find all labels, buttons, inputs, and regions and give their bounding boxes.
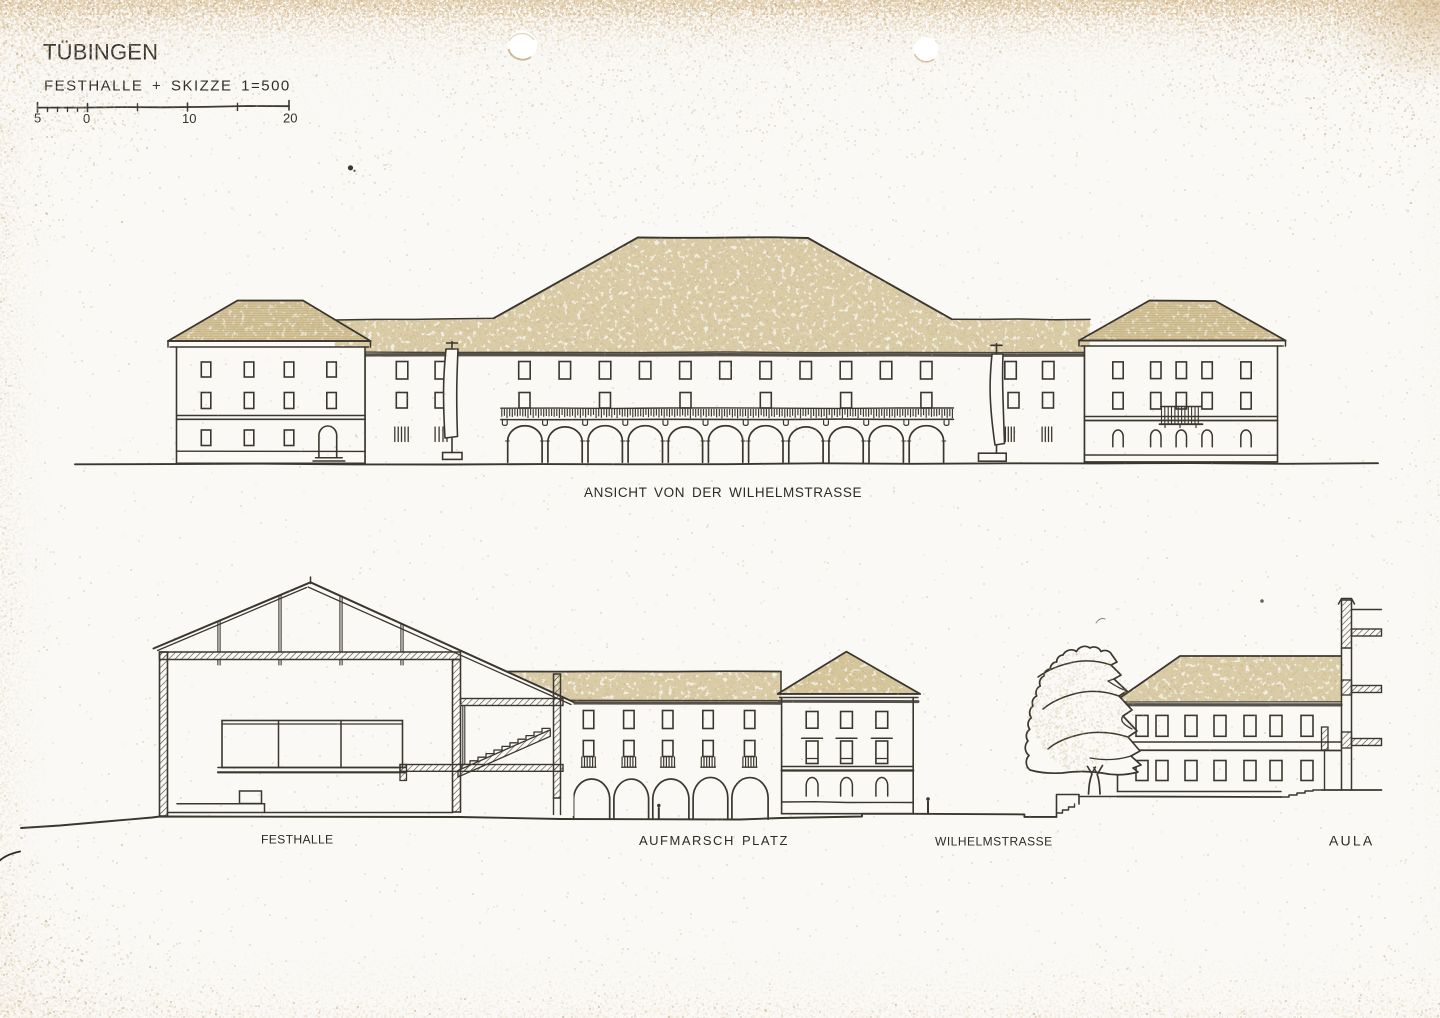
svg-text:FESTHALLE: FESTHALLE — [261, 833, 333, 847]
svg-text:ANSICHT VON DER WILHELMSTRASSE: ANSICHT VON DER WILHELMSTRASSE — [584, 485, 862, 500]
svg-text:AULA: AULA — [1329, 833, 1374, 849]
svg-text:AUFMARSCH PLATZ: AUFMARSCH PLATZ — [639, 833, 789, 848]
svg-text:WILHELMSTRASSE: WILHELMSTRASSE — [935, 835, 1053, 849]
